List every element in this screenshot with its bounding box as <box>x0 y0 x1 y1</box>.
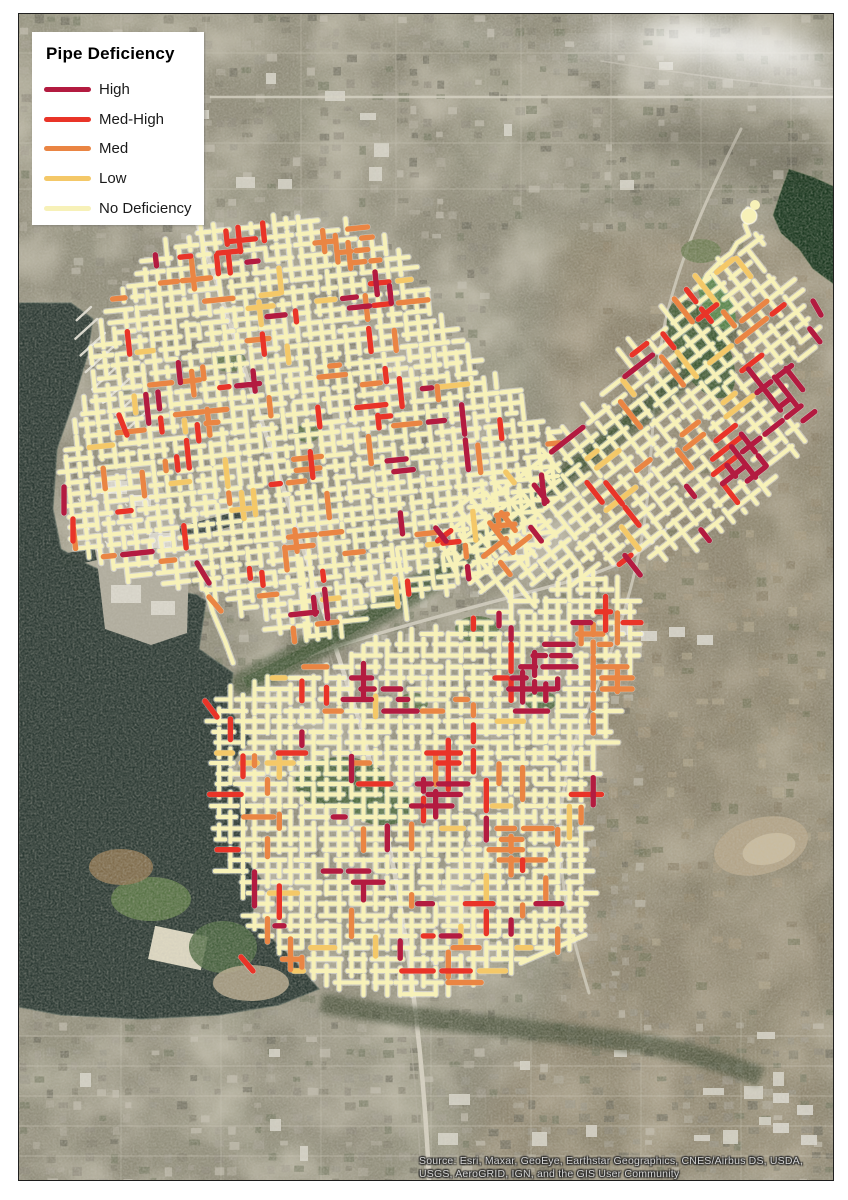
legend-item-high: High <box>32 75 204 105</box>
legend-item-med: Med <box>32 134 204 164</box>
legend-panel: Pipe Deficiency HighMed-HighMedLowNo Def… <box>32 32 204 225</box>
legend-items: HighMed-HighMedLowNo Deficiency <box>32 75 204 223</box>
legend-swatch-medhigh <box>44 117 91 122</box>
map-page: Pipe Deficiency HighMed-HighMedLowNo Def… <box>0 0 848 1200</box>
legend-label-none: No Deficiency <box>99 200 192 217</box>
map-frame: Pipe Deficiency HighMed-HighMedLowNo Def… <box>18 13 834 1181</box>
attribution-line2: USGS, AeroGRID, IGN, and the GIS User Co… <box>419 1168 803 1181</box>
legend-label-med: Med <box>99 140 128 157</box>
map-attribution: Source: Esri, Maxar, GeoEye, Earthstar G… <box>419 1155 803 1180</box>
legend-label-medhigh: Med-High <box>99 111 164 128</box>
legend-label-high: High <box>99 81 130 98</box>
legend-swatch-none <box>44 206 91 211</box>
legend-item-low: Low <box>32 164 204 194</box>
legend-swatch-high <box>44 87 91 92</box>
attribution-line1: Source: Esri, Maxar, GeoEye, Earthstar G… <box>419 1155 803 1168</box>
legend-label-low: Low <box>99 170 127 187</box>
legend-item-medhigh: Med-High <box>32 105 204 135</box>
legend-swatch-low <box>44 176 91 181</box>
legend-swatch-med <box>44 146 91 151</box>
legend-item-none: No Deficiency <box>32 193 204 223</box>
legend-title: Pipe Deficiency <box>46 44 204 64</box>
